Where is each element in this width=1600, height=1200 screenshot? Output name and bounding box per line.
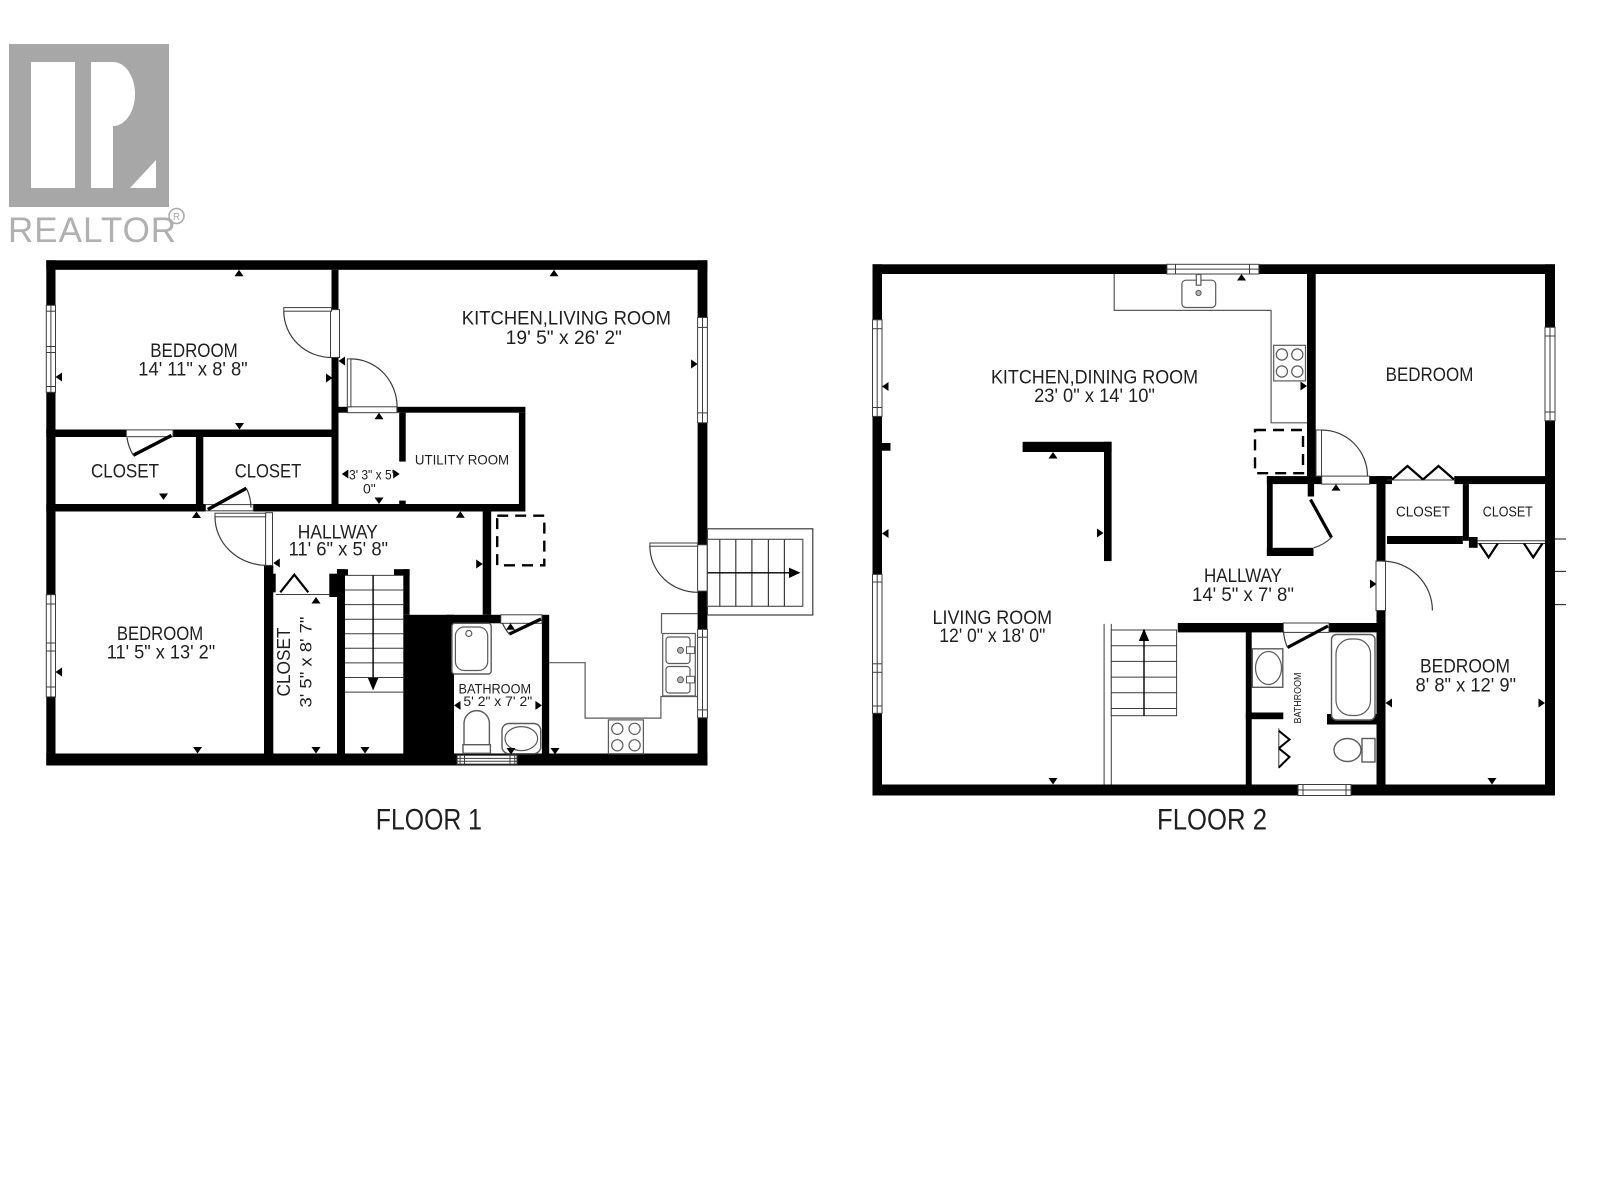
svg-text:REALTOR: REALTOR [8,211,177,250]
svg-text:11' 6" x 5' 8": 11' 6" x 5' 8" [289,540,389,561]
svg-text:14' 5" x 7' 8": 14' 5" x 7' 8" [1192,585,1294,606]
svg-text:8' 8" x 12' 9": 8' 8" x 12' 9" [1416,676,1517,697]
svg-text:23' 0" x 14' 10": 23' 0" x 14' 10" [1034,386,1155,407]
svg-text:0": 0" [363,481,376,497]
svg-text:12' 0" x 18' 0": 12' 0" x 18' 0" [939,626,1045,647]
svg-text:HALLWAY: HALLWAY [1204,566,1282,587]
svg-text:CLOSET: CLOSET [1396,504,1450,521]
svg-text:FLOOR 2: FLOOR 2 [1157,804,1267,837]
svg-text:KITCHEN,LIVING ROOM: KITCHEN,LIVING ROOM [462,309,671,330]
svg-text:FLOOR 1: FLOOR 1 [376,804,482,837]
svg-text:CLOSET: CLOSET [274,628,294,697]
svg-text:5' 2" x 7' 2": 5' 2" x 7' 2" [463,693,532,709]
svg-text:11' 5" x 13' 2": 11' 5" x 13' 2" [107,643,216,664]
svg-text:CLOSET: CLOSET [235,462,302,483]
svg-text:CLOSET: CLOSET [1483,504,1533,521]
svg-text:R: R [173,212,180,223]
svg-text:UTILITY ROOM: UTILITY ROOM [415,452,509,468]
svg-text:14' 11" x 8' 8": 14' 11" x 8' 8" [138,360,247,381]
svg-text:19' 5" x 26' 2": 19' 5" x 26' 2" [506,328,622,349]
svg-text:BEDROOM: BEDROOM [1420,657,1510,678]
svg-text:3' 5" x 8' 7": 3' 5" x 8' 7" [297,617,316,708]
svg-text:BATHROOM: BATHROOM [1292,673,1304,724]
svg-text:BEDROOM: BEDROOM [1386,365,1474,386]
svg-text:CLOSET: CLOSET [91,462,159,483]
